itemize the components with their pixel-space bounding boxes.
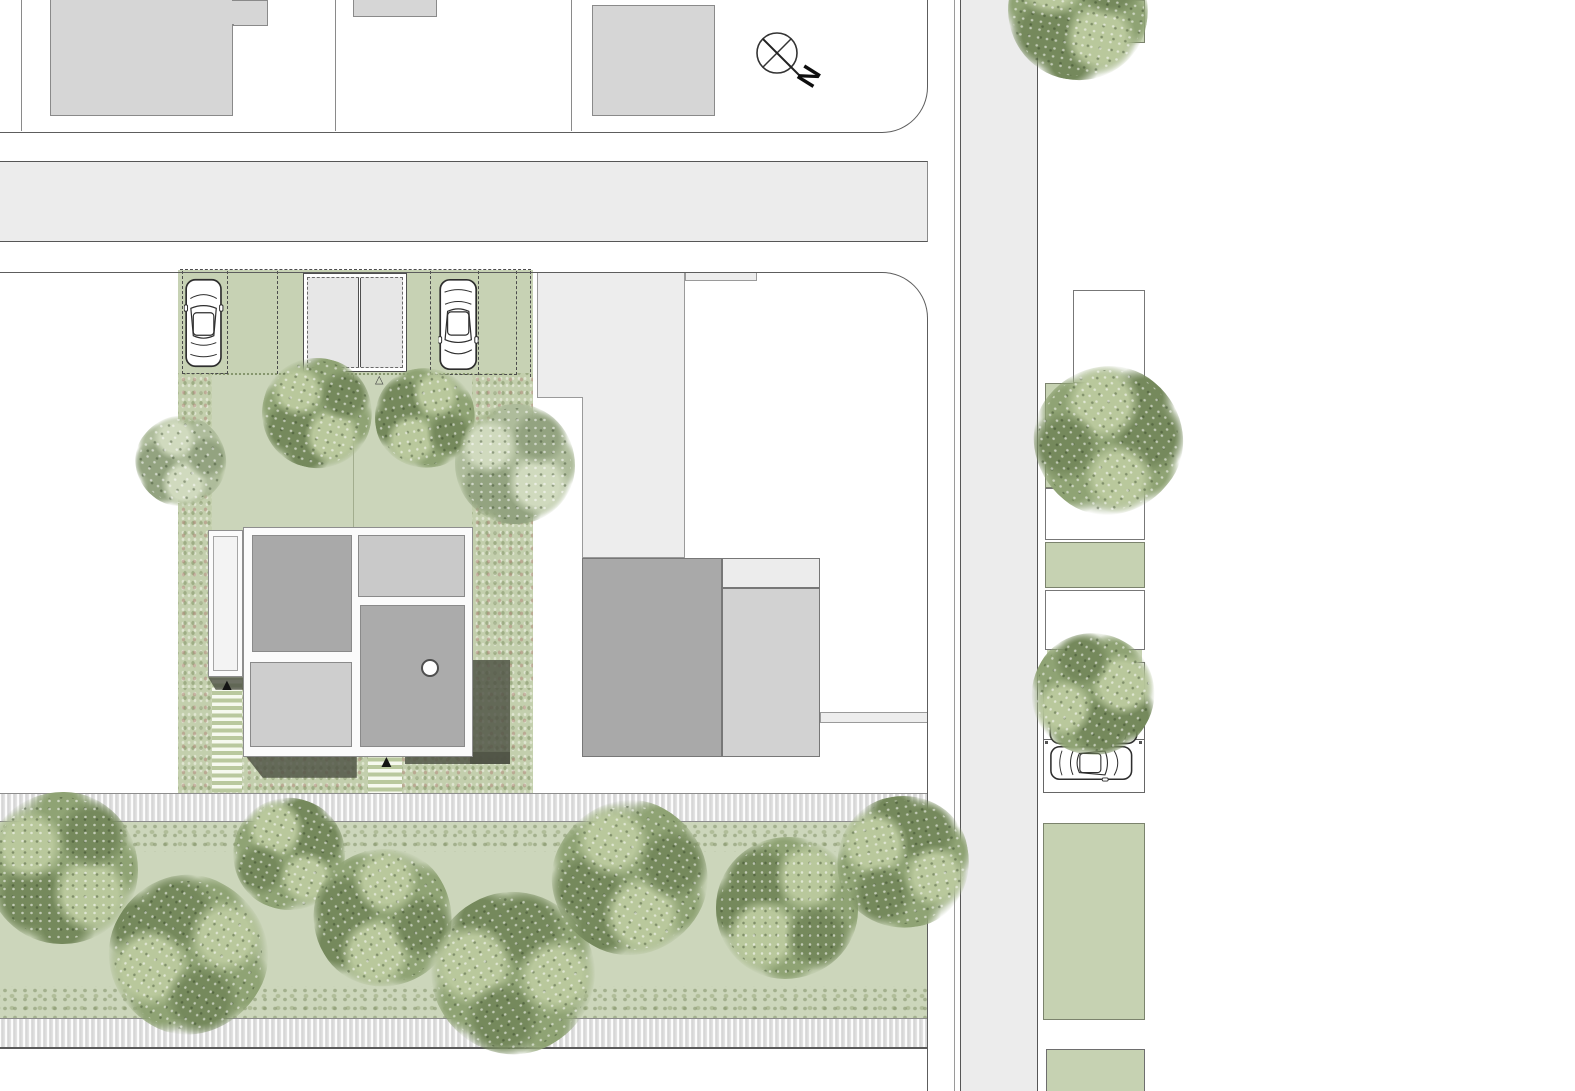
tree-layer bbox=[0, 0, 1575, 1091]
tree-canopy bbox=[1004, 336, 1213, 545]
site-plan-canvas: △ △ ▲ ▲ bbox=[0, 0, 1575, 1091]
tree-canopy bbox=[250, 346, 385, 481]
tree-canopy bbox=[997, 0, 1159, 91]
tree-canopy bbox=[455, 404, 575, 524]
tree-canopy bbox=[1010, 611, 1177, 778]
tree-canopy bbox=[118, 398, 245, 525]
